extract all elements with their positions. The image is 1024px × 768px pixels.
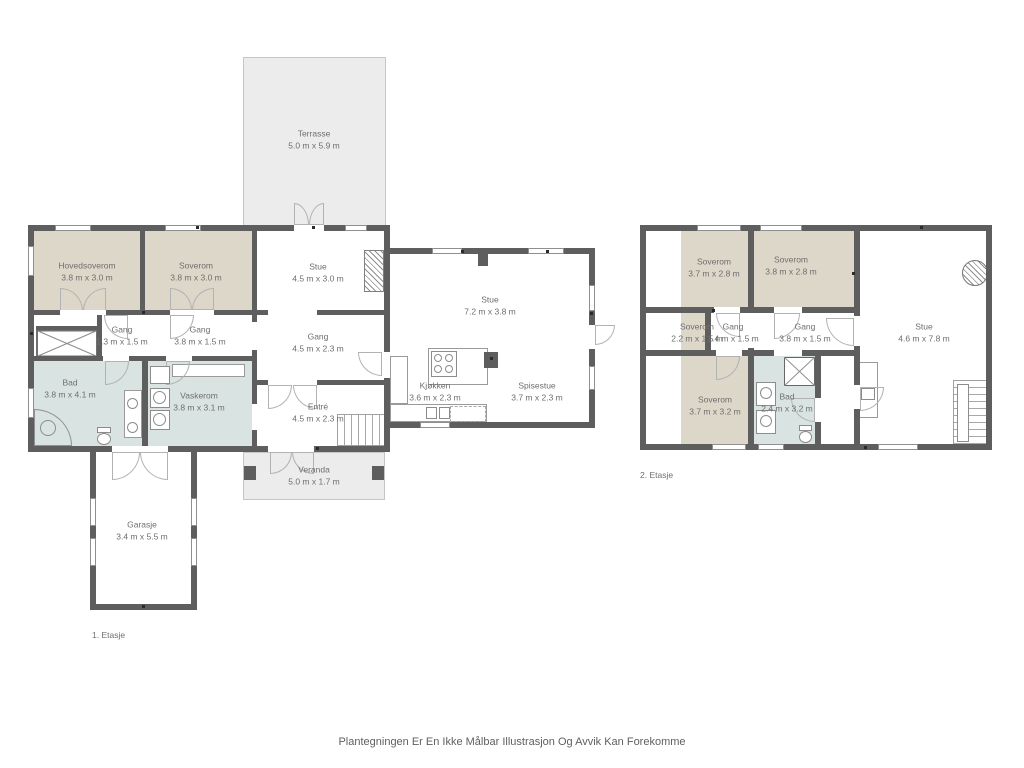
window <box>758 444 784 450</box>
wall <box>640 225 646 450</box>
room-name: Veranda <box>288 464 340 476</box>
room-label-soverom2-1: Soverom 3.7 m x 2.8 m <box>688 256 740 281</box>
room-dims: 3.8 m x 3.0 m <box>58 272 115 284</box>
door-opening <box>252 322 257 350</box>
wall <box>390 248 595 254</box>
tick <box>196 226 199 229</box>
room-dims: 4.5 m x 2.3 m <box>292 413 344 425</box>
sink-basin <box>760 415 772 427</box>
window <box>589 285 595 311</box>
wall <box>640 350 860 356</box>
room-dims: 3.7 m x 2.3 m <box>511 392 563 404</box>
door-opening <box>268 380 317 385</box>
door-opening <box>716 350 742 356</box>
window <box>420 422 450 428</box>
room-name: Stue <box>898 321 950 333</box>
door-arc <box>112 452 140 480</box>
room-name: Soverom <box>688 256 740 268</box>
window <box>28 246 34 276</box>
door-opening <box>60 310 106 315</box>
wall <box>140 225 145 315</box>
wall <box>142 356 148 452</box>
stair-rail <box>957 384 969 442</box>
window <box>28 388 34 418</box>
tick <box>864 446 867 449</box>
room-dims: 3.8 m x 1.5 m <box>174 336 226 348</box>
room-label-spisestue: Spisestue 3.7 m x 2.3 m <box>511 380 563 405</box>
wall <box>986 225 992 450</box>
burner-icon <box>445 354 453 362</box>
door-opening <box>112 446 168 452</box>
room-name: Gang <box>292 331 344 343</box>
door-opening <box>268 310 317 315</box>
room-dims: 3.6 m x 2.3 m <box>409 392 461 404</box>
wall <box>28 446 390 452</box>
tick <box>316 447 319 450</box>
wall <box>748 225 754 313</box>
dryer-drum <box>153 413 166 426</box>
door-opening <box>252 404 257 430</box>
window <box>712 444 746 450</box>
tick <box>461 250 464 253</box>
room-dims: 3.8 m x 1.5 m <box>779 333 831 345</box>
tick <box>312 226 315 229</box>
room-name: Bad <box>761 391 813 403</box>
room-name: Spisestue <box>511 380 563 392</box>
wall-stub <box>484 352 498 368</box>
tick <box>490 357 493 360</box>
wall <box>640 225 992 231</box>
bathtub-drain <box>40 420 56 436</box>
room-dims: 5.0 m x 1.7 m <box>288 476 340 488</box>
room-name: Kjøkken <box>409 380 461 392</box>
sink-icon <box>861 388 875 400</box>
door-opening <box>774 307 802 313</box>
room-dims: 3.8 m x 4.1 m <box>44 389 96 401</box>
door-arc <box>268 385 292 409</box>
window <box>760 225 802 231</box>
room-name: Entré <box>292 401 344 413</box>
wall <box>384 225 390 452</box>
room-name: Vaskerom <box>173 390 225 402</box>
shower-icon <box>784 357 815 386</box>
room-label-kjokken: Kjøkken 3.6 m x 2.3 m <box>409 380 461 405</box>
appliance-outline <box>450 406 486 422</box>
door-arc <box>595 325 615 345</box>
room-name: Gang <box>779 321 831 333</box>
door-opening <box>268 446 314 452</box>
room-name: Hovedsoverom <box>58 260 115 272</box>
room-dims: 3.8 m x 3.0 m <box>170 272 222 284</box>
room-label-gang2-1: Gang 1.4 m x 1.5 m <box>707 321 759 346</box>
toilet-icon <box>97 433 111 445</box>
room-name: Terrasse <box>288 128 340 140</box>
wall <box>36 326 98 330</box>
room-label-soverom2-2: Soverom 3.8 m x 2.8 m <box>765 254 817 279</box>
room-dims: 3.7 m x 2.8 m <box>688 268 740 280</box>
window <box>345 225 367 231</box>
room-name: Soverom <box>765 254 817 266</box>
room-dims: 4.5 m x 2.3 m <box>292 343 344 355</box>
room-name: Stue <box>464 294 516 306</box>
room-label-soverom: Soverom 3.8 m x 3.0 m <box>170 260 222 285</box>
window <box>589 366 595 390</box>
room-label-soverom2-4: Soverom 3.7 m x 3.2 m <box>689 394 741 419</box>
tick <box>590 312 593 315</box>
veranda-post <box>372 466 384 480</box>
door-opening <box>714 307 740 313</box>
fireplace-icon <box>364 250 384 292</box>
room-label-gang: Gang 3.8 m x 1.5 m <box>174 324 226 349</box>
door-arc <box>358 352 382 376</box>
room-label-stue-stor: Stue 7.2 m x 3.8 m <box>464 294 516 319</box>
chimney-icon <box>962 260 988 286</box>
room-label-gang-small: Gang 1.3 m x 1.5 m <box>96 324 148 349</box>
sink-icon <box>426 407 437 419</box>
room-dims: 7.2 m x 3.8 m <box>464 306 516 318</box>
window <box>90 498 96 526</box>
room-dims: 5.0 m x 5.9 m <box>288 140 340 152</box>
door-opening <box>774 350 802 356</box>
room-label-bad: Bad 3.8 m x 4.1 m <box>44 377 96 402</box>
tick <box>142 605 145 608</box>
tick <box>142 311 145 314</box>
room-label-veranda: Veranda 5.0 m x 1.7 m <box>288 464 340 489</box>
room-dims: 3.8 m x 2.8 m <box>765 266 817 278</box>
garage-wall <box>191 452 197 610</box>
window <box>878 444 918 450</box>
room-name: Stue <box>292 261 344 273</box>
room-name: Gang <box>96 324 148 336</box>
room-label-gang-center: Gang 4.5 m x 2.3 m <box>292 331 344 356</box>
garage-wall <box>90 452 96 610</box>
tick <box>852 272 855 275</box>
sink-icon <box>439 407 450 419</box>
door-opening <box>854 316 860 346</box>
wardrobe-icon <box>36 330 98 357</box>
sink-icon <box>127 422 138 433</box>
room-label-garasje: Garasje 3.4 m x 5.5 m <box>116 519 168 544</box>
room-dims: 4.5 m x 3.0 m <box>292 273 344 285</box>
room-name: Soverom <box>689 394 741 406</box>
window <box>697 225 741 231</box>
room-dims: 1.4 m x 1.5 m <box>707 333 759 345</box>
door-opening <box>589 325 595 349</box>
room-label-stue: Stue 4.5 m x 3.0 m <box>292 261 344 286</box>
door-opening <box>815 398 821 422</box>
room-dims: 1.3 m x 1.5 m <box>96 336 148 348</box>
washer-drum <box>153 391 166 404</box>
wall-stub <box>478 254 488 266</box>
burner-icon <box>434 365 442 373</box>
room-name: Gang <box>707 321 759 333</box>
window <box>90 538 96 566</box>
floor2-caption: 2. Etasje <box>640 470 673 480</box>
room-dims: 3.8 m x 3.1 m <box>173 402 225 414</box>
window <box>191 498 197 526</box>
door-opening <box>854 385 860 409</box>
door-arc <box>140 452 168 480</box>
room-name: Bad <box>44 377 96 389</box>
tick <box>546 250 549 253</box>
window <box>432 248 462 254</box>
floorplan-canvas: Terrasse 5.0 m x 5.9 m Hovedsoverom 3.8 … <box>0 0 1024 768</box>
door-opening <box>166 356 192 361</box>
disclaimer-text: Plantegningen Er En Ikke Målbar Illustra… <box>0 736 1024 748</box>
toilet-icon <box>799 431 812 443</box>
room-label-bad2: Bad 2.4 m x 3.2 m <box>761 391 813 416</box>
veranda-post <box>244 466 256 480</box>
floor1-caption: 1. Etasje <box>92 630 125 640</box>
kitchen-counter <box>390 356 408 404</box>
tick <box>30 332 33 335</box>
room-label-vaskerom: Vaskerom 3.8 m x 3.1 m <box>173 390 225 415</box>
room-dims: 3.7 m x 3.2 m <box>689 406 741 418</box>
room-label-gang2-2: Gang 3.8 m x 1.5 m <box>779 321 831 346</box>
room-name: Garasje <box>116 519 168 531</box>
wall <box>748 348 754 450</box>
burner-icon <box>445 365 453 373</box>
window <box>55 225 91 231</box>
burner-icon <box>434 354 442 362</box>
door-opening <box>103 356 129 361</box>
room-label-entre: Entré 4.5 m x 2.3 m <box>292 401 344 426</box>
room-name: Soverom <box>170 260 222 272</box>
electrical-panel-icon <box>150 366 170 384</box>
tick <box>920 226 923 229</box>
window <box>191 538 197 566</box>
sink-icon <box>127 398 138 409</box>
room-label-stue2: Stue 4.6 m x 7.8 m <box>898 321 950 346</box>
room-name: Gang <box>174 324 226 336</box>
door-opening <box>294 225 324 231</box>
room-dims: 2.4 m x 3.2 m <box>761 403 813 415</box>
room-dims: 3.4 m x 5.5 m <box>116 531 168 543</box>
room-dims: 4.6 m x 7.8 m <box>898 333 950 345</box>
tick <box>712 309 715 312</box>
wall <box>640 307 860 313</box>
door-opening <box>170 310 214 315</box>
room-label-hovedsoverom: Hovedsoverom 3.8 m x 3.0 m <box>58 260 115 285</box>
room-label-terrasse: Terrasse 5.0 m x 5.9 m <box>288 128 340 153</box>
staircase <box>337 414 385 446</box>
door-opening <box>384 352 390 378</box>
